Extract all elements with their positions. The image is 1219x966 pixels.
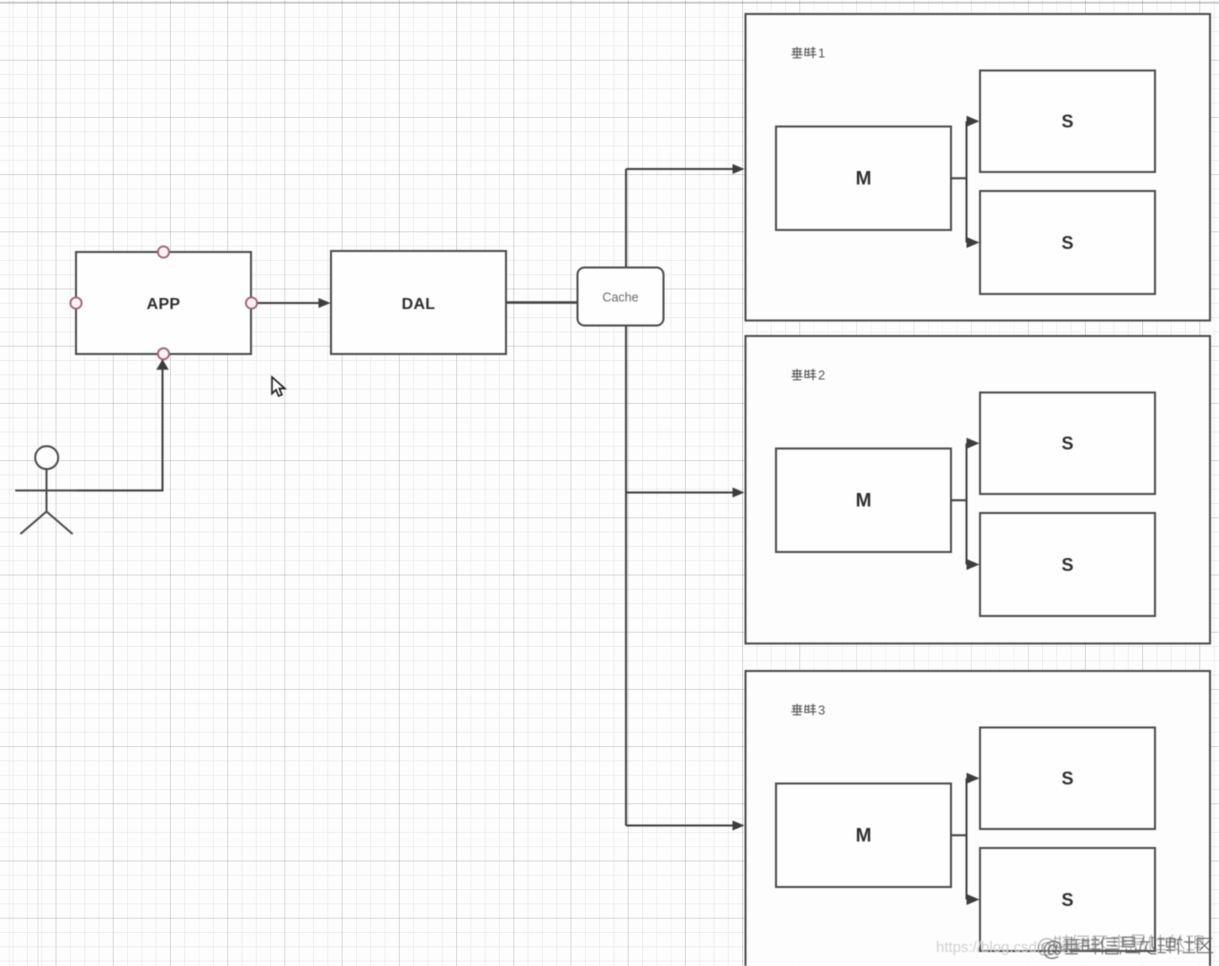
svg-text:Cache: Cache: [602, 291, 638, 305]
svg-text:DAL: DAL: [402, 296, 436, 313]
svg-text:S: S: [1061, 434, 1073, 454]
svg-text:1: 1: [818, 46, 825, 61]
svg-text:APP: APP: [147, 296, 181, 313]
svg-text:M: M: [856, 491, 872, 512]
svg-text:M: M: [856, 169, 872, 190]
svg-text:2: 2: [818, 368, 825, 383]
svg-text:S: S: [1061, 233, 1073, 253]
svg-text:S: S: [1061, 555, 1073, 575]
svg-text:S: S: [1061, 112, 1073, 132]
svg-text:M: M: [856, 826, 872, 847]
svg-text:@: @: [1036, 936, 1056, 958]
svg-text:S: S: [1061, 769, 1073, 789]
svg-text:S: S: [1061, 890, 1073, 910]
svg-text:3: 3: [818, 703, 825, 718]
